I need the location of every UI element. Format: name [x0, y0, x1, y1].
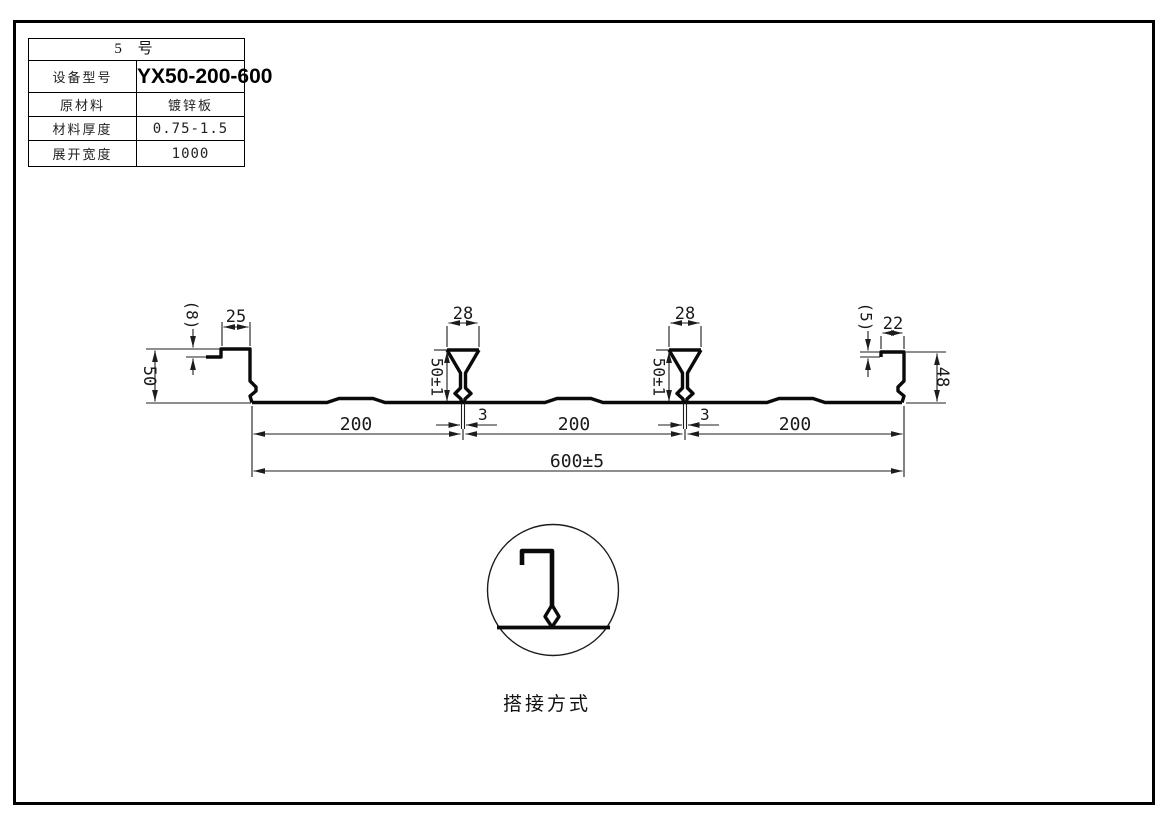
dim-left-edge-drop: (8) — [183, 301, 202, 330]
profile-left-edge — [206, 349, 256, 403]
detail-diamond — [545, 605, 559, 627]
dim-rib2-height: 50±1 — [650, 358, 669, 397]
dimension-labels: 50 (8) 25 28 50±1 3 28 50±1 3 (5) 22 48 … — [139, 301, 952, 472]
dim-pitch-1: 200 — [340, 414, 373, 435]
drawing-sheet: 5 号 设备型号 YX50-200-600 原材料 镀锌板 材料厚度 0.75-… — [0, 0, 1169, 827]
profile-rib-2 — [669, 350, 701, 429]
profile-baseline — [252, 399, 902, 403]
dim-rib1-top: 28 — [453, 304, 473, 324]
dim-right-height: 48 — [932, 367, 952, 387]
detail-caption: 搭接方式 — [503, 693, 591, 715]
lap-joint-detail: 搭接方式 — [488, 525, 619, 716]
dim-rib2-stem: 3 — [700, 405, 710, 424]
detail-hook — [522, 551, 552, 607]
profile-drawing: 50 (8) 25 28 50±1 3 28 50±1 3 (5) 22 48 … — [0, 0, 1169, 827]
dim-pitch-2: 200 — [558, 414, 591, 435]
profile-right-edge — [881, 352, 904, 403]
dim-rib2-top: 28 — [675, 304, 695, 324]
dim-rib1-stem: 3 — [478, 405, 488, 424]
dim-pitch-3: 200 — [779, 414, 812, 435]
dim-left-flange: 25 — [226, 307, 246, 327]
dim-right-edge-drop: (5) — [857, 303, 876, 332]
dimension-lines — [146, 322, 946, 477]
dim-right-flange: 22 — [883, 314, 903, 334]
dim-rib1-height: 50±1 — [428, 358, 447, 397]
profile-rib-1 — [447, 350, 479, 429]
dim-left-height: 50 — [139, 366, 159, 386]
dim-overall-width: 600±5 — [550, 451, 604, 472]
